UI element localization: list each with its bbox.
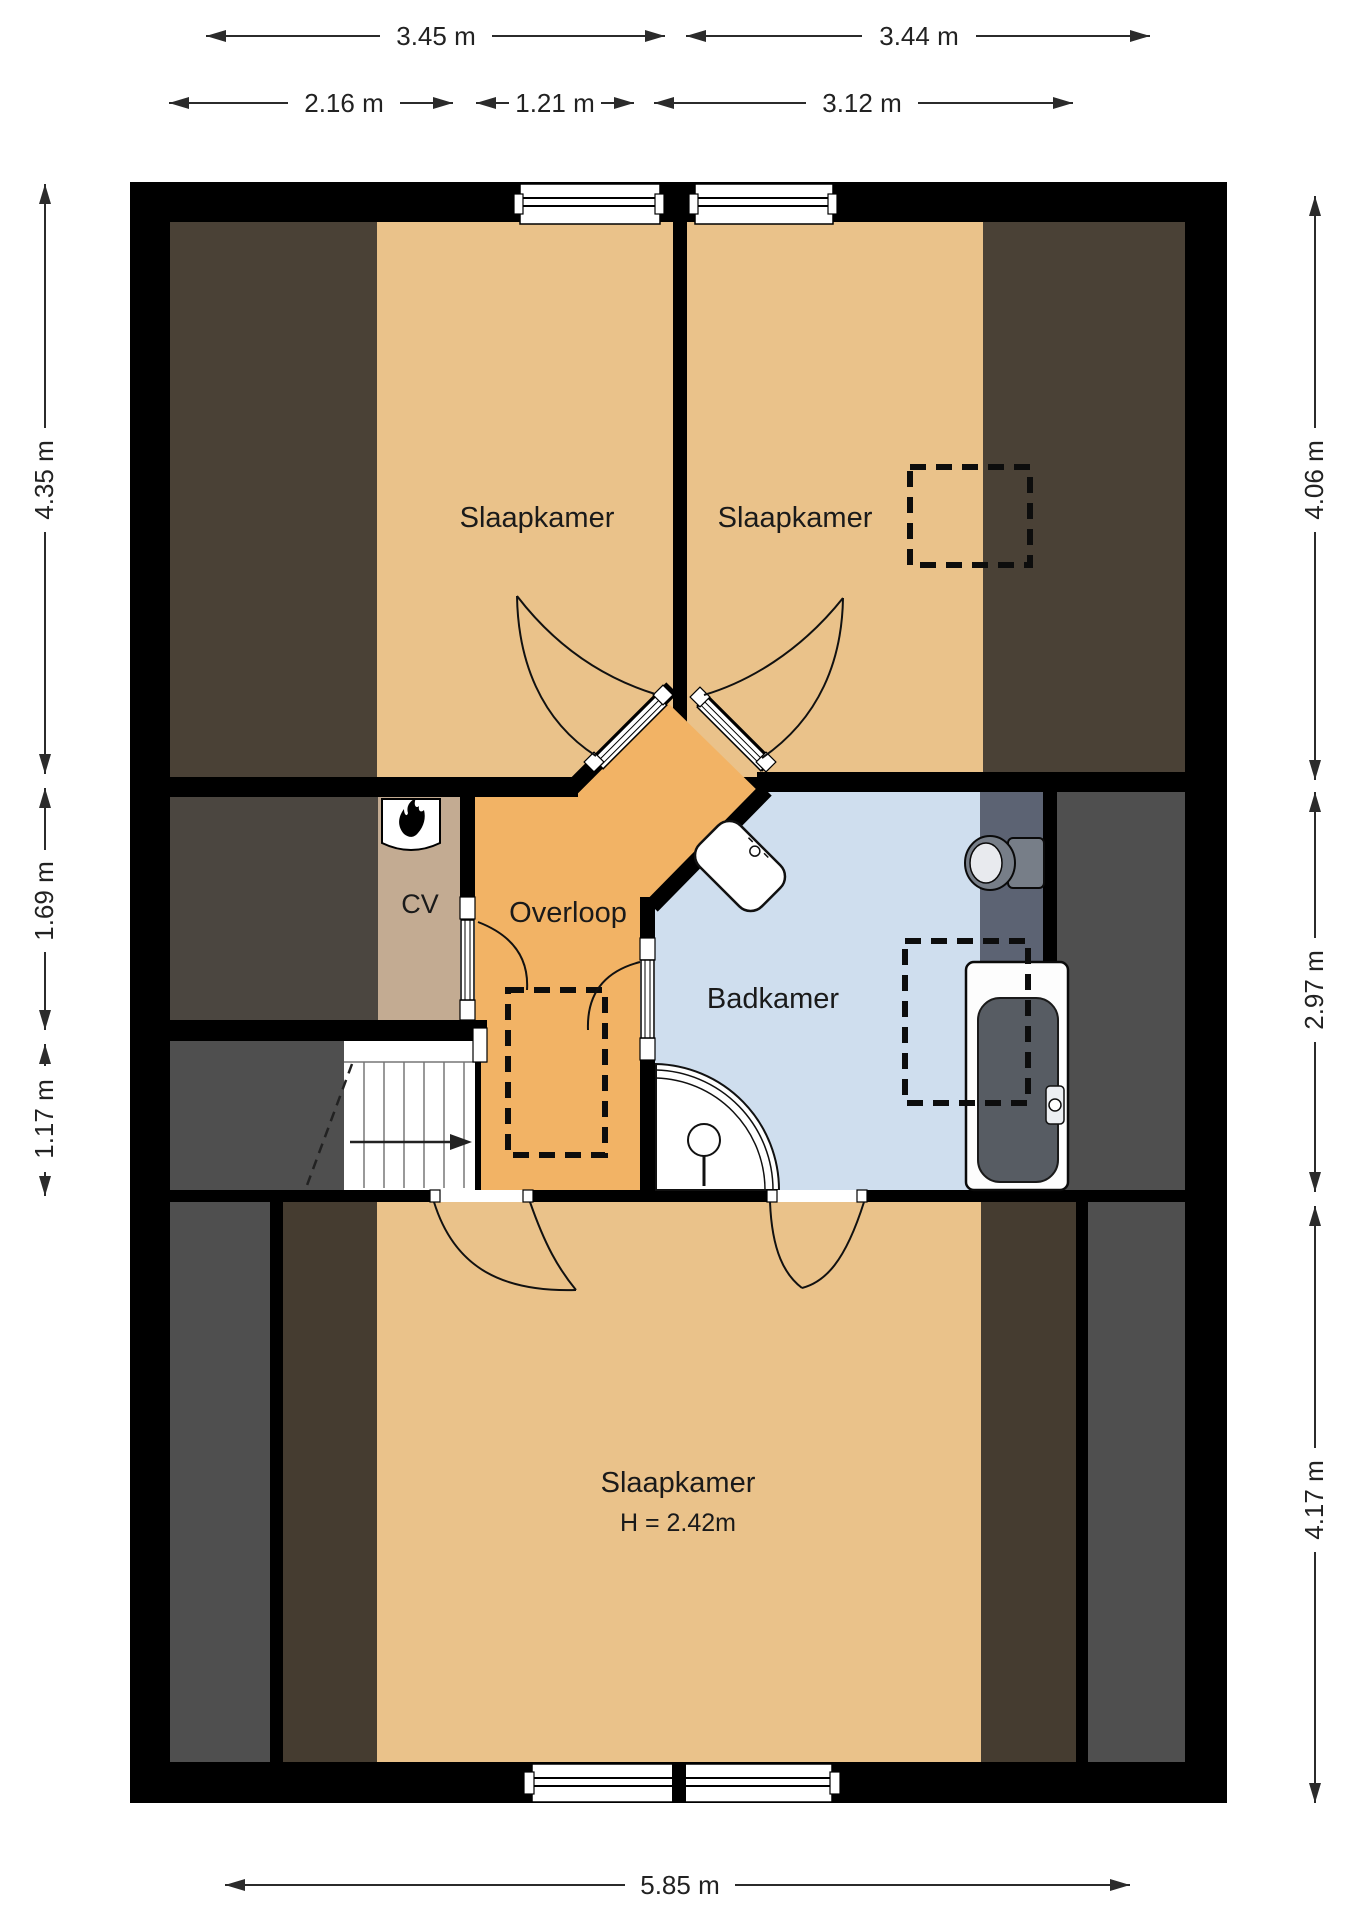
window-top-left (514, 184, 664, 224)
stair-balustrade (475, 1062, 481, 1190)
label-bedroom-top-left: Slaapkamer (460, 502, 615, 534)
label-landing: Overloop (509, 897, 627, 929)
room-bedroom-top-right (687, 222, 983, 777)
svg-text:3.44 m: 3.44 m (879, 21, 959, 51)
wall-middle-bottom (170, 1190, 1185, 1202)
sloped-zone-bottom-right (981, 1202, 1076, 1762)
room-bedroom-top-left (377, 222, 673, 777)
sloped-zone-bottom-far-left (170, 1202, 270, 1762)
wall-bedroom-divider (673, 222, 687, 692)
wall-bottom-left-thin (270, 1202, 283, 1762)
svg-text:1.69 m: 1.69 m (29, 861, 59, 941)
stair-void (170, 1041, 344, 1190)
void-zone-right-middle (1057, 792, 1185, 1190)
svg-text:2.97 m: 2.97 m (1299, 950, 1329, 1030)
label-heating-closet: CV (401, 889, 439, 919)
label-bathroom: Badkamer (707, 983, 840, 1015)
label-bedroom-bottom-height: H = 2.42m (620, 1509, 736, 1537)
svg-text:3.12 m: 3.12 m (822, 88, 902, 118)
wall-middle-top-left (170, 777, 578, 797)
svg-text:4.17 m: 4.17 m (1299, 1460, 1329, 1540)
sloped-ceiling-zone-top-right (983, 222, 1185, 777)
svg-text:2.16 m: 2.16 m (304, 88, 384, 118)
wall-above-stairs (170, 1020, 487, 1041)
svg-text:4.35 m: 4.35 m (29, 440, 59, 520)
svg-text:3.45 m: 3.45 m (396, 21, 476, 51)
svg-text:1.21 m: 1.21 m (515, 88, 595, 118)
wall-bottom-right-thin (1076, 1202, 1088, 1762)
void-zone-left (170, 797, 378, 1025)
svg-text:4.06 m: 4.06 m (1299, 440, 1329, 520)
wall-middle-top-right (757, 772, 1185, 792)
window-bottom (524, 1764, 840, 1802)
stair-top-opening (473, 1028, 487, 1062)
shower-head (688, 1124, 720, 1156)
sloped-zone-bottom-far-right (1088, 1202, 1185, 1762)
svg-text:5.85 m: 5.85 m (640, 1870, 720, 1900)
sloped-ceiling-zone-top-left (170, 222, 377, 777)
label-bedroom-bottom: Slaapkamer (601, 1467, 756, 1499)
bathtub (966, 962, 1068, 1190)
sloped-zone-bottom-left (283, 1202, 377, 1762)
svg-text:1.17 m: 1.17 m (29, 1079, 59, 1159)
window-top-right (689, 184, 837, 224)
floorplan-canvas: Slaapkamer Slaapkamer CV Overloop Badkam… (0, 0, 1358, 1920)
label-bedroom-top-right: Slaapkamer (718, 502, 873, 534)
toilet (965, 836, 1044, 890)
staircase (344, 1041, 487, 1190)
boiler (382, 798, 440, 850)
